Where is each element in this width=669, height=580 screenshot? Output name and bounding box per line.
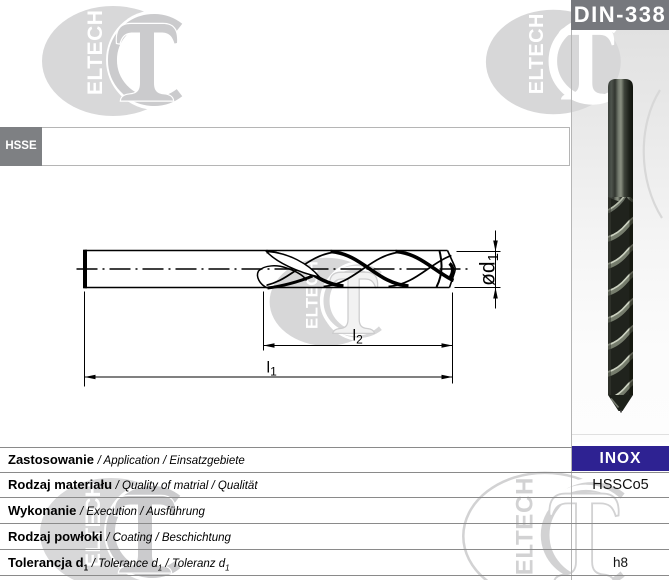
svg-text:l1: l1 xyxy=(267,360,278,379)
svg-text:ød1: ød1 xyxy=(477,253,503,286)
svg-text:l2: l2 xyxy=(353,328,364,347)
